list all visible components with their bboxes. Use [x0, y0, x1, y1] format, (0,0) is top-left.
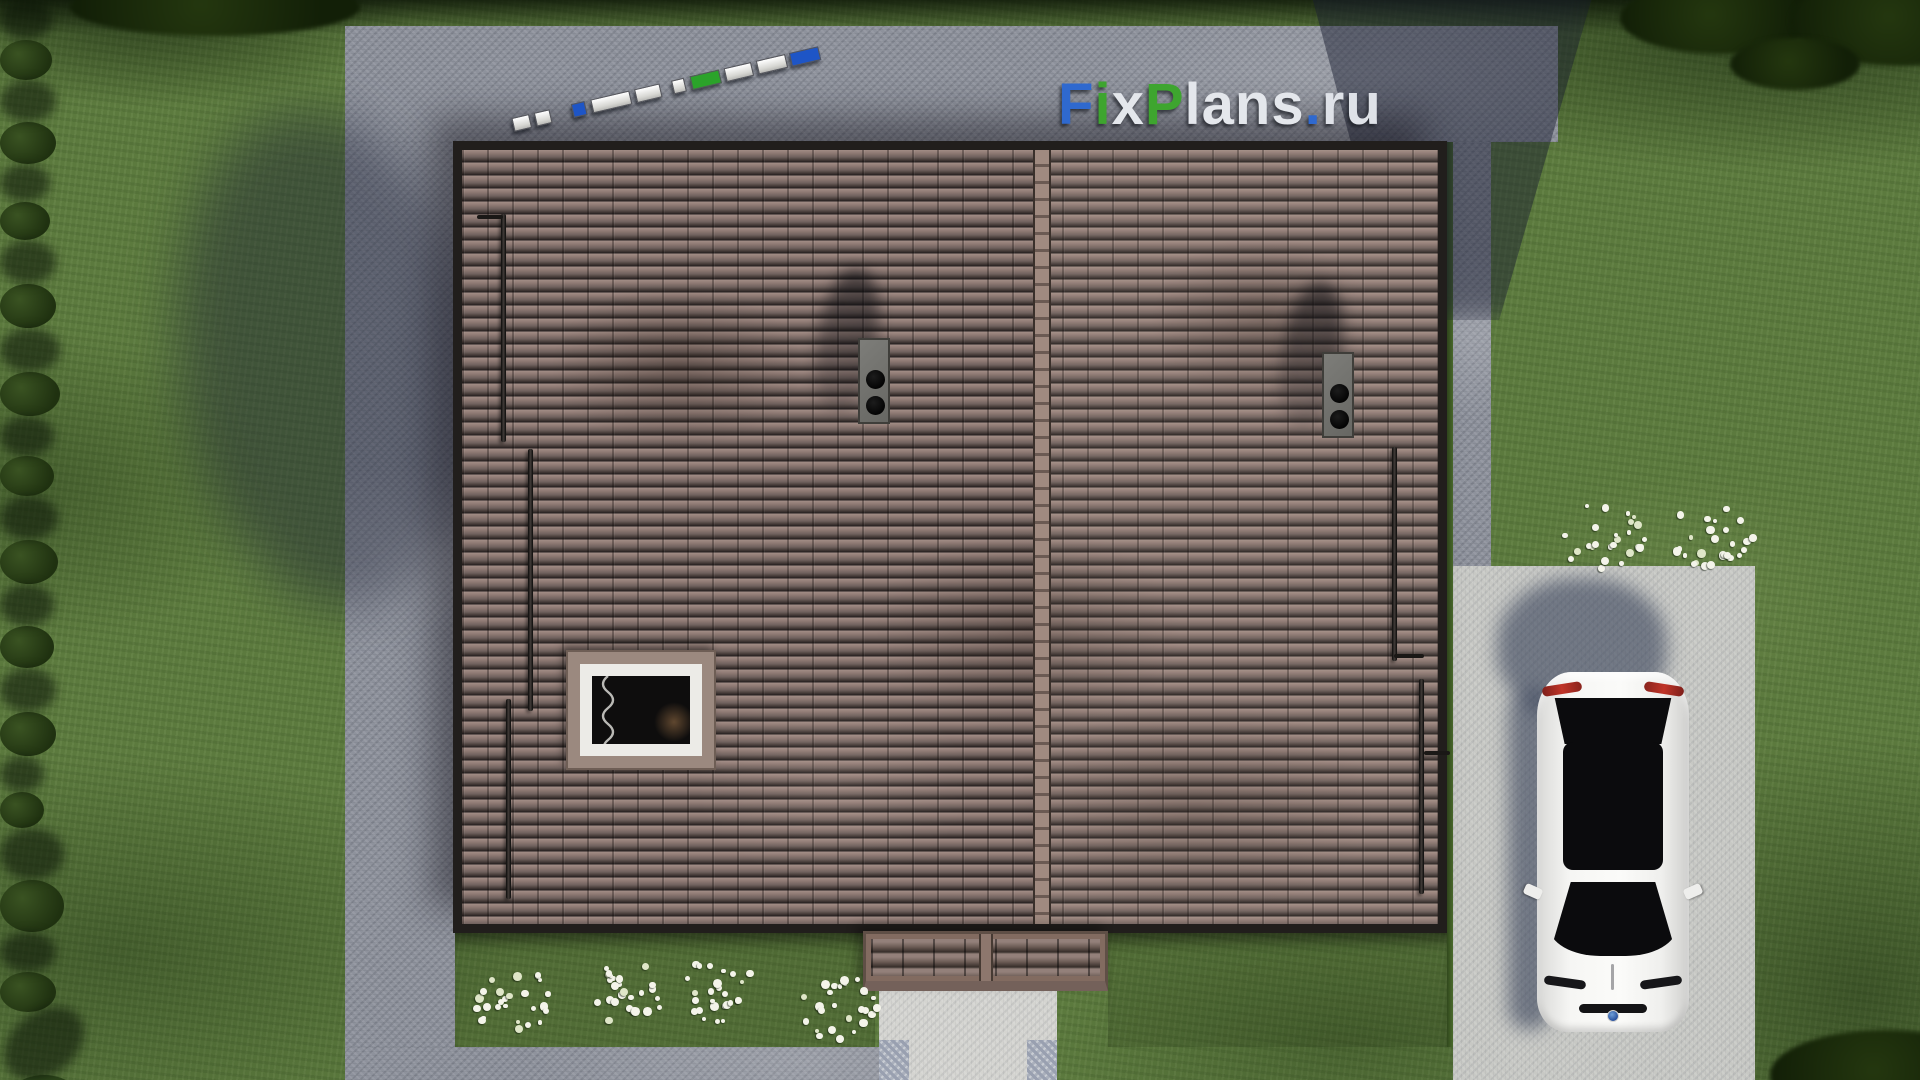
white-car [1537, 672, 1689, 1032]
flower-icon [1610, 542, 1616, 548]
concrete-apron-bottom [345, 1047, 879, 1080]
chimney-flue-icon [1330, 384, 1349, 403]
flower-icon [1608, 544, 1614, 550]
gravel-strip-right [1027, 1040, 1057, 1080]
flower-icon [1585, 504, 1589, 508]
bush-shadow [0, 828, 64, 880]
watermark-letter: l [1185, 72, 1202, 137]
roof-rail-tick-2 [1394, 654, 1424, 658]
flower-icon [1628, 519, 1634, 525]
bush-shadow [0, 668, 56, 712]
bush-shadow [0, 80, 56, 122]
watermark-letter: . [1305, 72, 1322, 137]
ruler-segment [671, 78, 687, 95]
flower-icon [1602, 504, 1609, 511]
flower-icon [1741, 547, 1747, 553]
roof-rail-right-1 [1392, 447, 1397, 661]
flower-icon [1730, 541, 1736, 547]
bush-shadow [0, 164, 50, 202]
flower-icon [1590, 545, 1595, 550]
flower-icon [1673, 547, 1681, 555]
porch-canopy [863, 931, 1108, 991]
bush [0, 626, 54, 668]
skylight-window [566, 650, 716, 770]
roof-rail-left-3 [506, 699, 511, 899]
roof-rail-left-1 [501, 214, 506, 442]
bush-shadow [0, 756, 44, 792]
bush [0, 202, 50, 240]
bush-shadow [0, 932, 56, 972]
flower-icon [1632, 515, 1636, 519]
flower-icon [1627, 530, 1631, 534]
garden-bed-right [1108, 933, 1447, 1047]
hood-crease [1611, 964, 1614, 990]
watermark-letter: r [1322, 72, 1346, 137]
roof-rail-left-2 [528, 449, 533, 711]
watermark-letter: i [1094, 72, 1111, 137]
bush [0, 372, 60, 416]
house-roof [453, 141, 1447, 933]
flower-icon [1704, 516, 1711, 523]
bush [0, 972, 56, 1012]
flower-icon [1636, 544, 1644, 552]
porch-canopy-ridge [979, 934, 993, 981]
watermark-letter: F [1058, 72, 1094, 137]
chimney-flue-icon [866, 370, 885, 389]
tree-canopy-top-right-3 [1730, 38, 1860, 90]
flower-icon [1626, 511, 1630, 515]
roof-rail-right-2 [1419, 679, 1424, 894]
garden-bed-left [455, 933, 875, 1047]
watermark-letter: P [1145, 72, 1185, 137]
chimney-flue-icon [866, 396, 885, 415]
flower-icon [1677, 546, 1683, 552]
roof-rail-tick-3 [1424, 751, 1450, 755]
flower-icon [1562, 533, 1568, 539]
flower-icon [1723, 527, 1729, 533]
flower-icon [1626, 549, 1634, 557]
flower-icon [1635, 544, 1641, 550]
flower-icon [1724, 552, 1731, 559]
bush-shadow [0, 240, 56, 284]
site-aerial-render: FixPlans.ru [0, 0, 1920, 1080]
flower-icon [1683, 553, 1687, 557]
bush [0, 540, 58, 584]
flower-icon [1689, 535, 1693, 539]
bush [0, 40, 52, 80]
watermark-letter: n [1235, 72, 1271, 137]
flower-icon [1614, 536, 1621, 543]
skylight-glow [654, 702, 690, 742]
flower-icon [1642, 537, 1647, 542]
flower-icon [1574, 548, 1580, 554]
bush-shadow [0, 496, 58, 540]
flower-icon [1706, 526, 1714, 534]
bush-shadow [0, 584, 54, 626]
flower-foliage [0, 1075, 88, 1080]
flower-icon [1634, 521, 1643, 530]
flower-icon [1677, 511, 1685, 519]
flower-icon [1586, 543, 1592, 549]
skylight-glass [592, 676, 690, 744]
flower-icon [1592, 524, 1599, 531]
bush-bottom-right-corner [1770, 1030, 1920, 1080]
bush [0, 284, 56, 328]
flower-icon [1592, 541, 1600, 549]
roof-sunroof-glass [1563, 742, 1663, 870]
flower-icon [1713, 519, 1717, 523]
flower-icon [1639, 544, 1644, 549]
flower-icon [1719, 551, 1727, 559]
flower-icon [1721, 552, 1727, 558]
roof-ridge [1033, 150, 1051, 924]
watermark-letter: u [1345, 72, 1381, 137]
bush [0, 456, 54, 496]
watermark-letter: x [1112, 72, 1145, 137]
bush-shadow [0, 416, 54, 456]
gravel-strip-left [879, 1040, 909, 1080]
flower-bush-shadow [0, 992, 98, 1080]
watermark-letter: a [1202, 72, 1235, 137]
bush [0, 122, 56, 164]
chimney-flue-icon [1330, 410, 1349, 429]
flower-icon [1614, 533, 1618, 537]
flower-icon [1743, 538, 1750, 545]
roof-right-half-tint [1050, 150, 1438, 924]
skylight-reflection [594, 676, 624, 744]
watermark-letter: s [1271, 72, 1304, 137]
flower-icon [1711, 535, 1719, 543]
flower-icon [1723, 506, 1730, 513]
flower-icon [1568, 556, 1574, 562]
flower-icon [1737, 553, 1742, 558]
bush-shadow [0, 328, 60, 372]
flower-icon [1749, 534, 1757, 542]
flower-icon [1727, 555, 1734, 562]
watermark-logo: FixPlans.ru [1058, 76, 1382, 134]
windshield [1549, 882, 1677, 956]
bush [0, 792, 44, 828]
roof-rail-tick-1 [477, 215, 503, 219]
flower-icon [1601, 557, 1609, 565]
chimney-right [1322, 352, 1354, 438]
bush [0, 880, 64, 932]
rear-window [1551, 698, 1675, 744]
flower-icon [1737, 517, 1744, 524]
brand-badge-icon [1607, 1010, 1619, 1022]
bush [0, 712, 56, 756]
flower-icon [1693, 560, 1699, 566]
flower-icon [1697, 549, 1706, 558]
chimney-left [858, 338, 890, 424]
